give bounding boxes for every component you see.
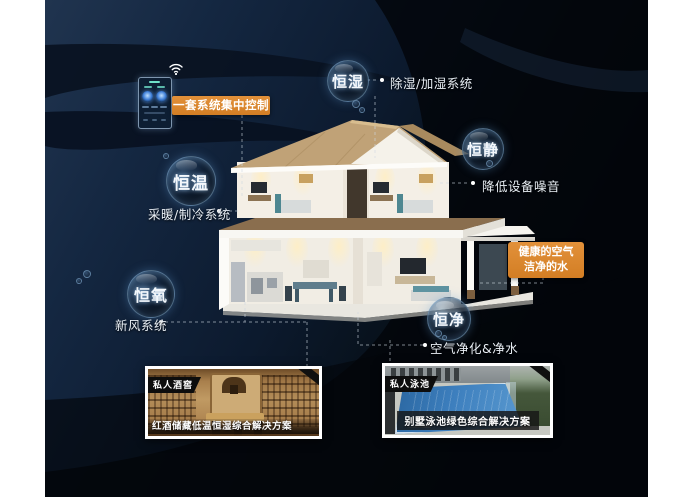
wifi-icon xyxy=(168,61,184,75)
control-panel-device xyxy=(138,77,172,129)
dark-canvas: 一套系统集中控制 恒湿 恒静 恒温 恒氧 恒净 除湿/加湿系统 降低设备噪音 采… xyxy=(45,0,648,497)
bubble-label: 恒静 xyxy=(467,139,499,160)
bubble-constant-temperature: 恒温 xyxy=(166,156,216,206)
note-constant-purity: 空气净化&净水 xyxy=(430,338,518,357)
bubble-constant-oxygen: 恒氧 xyxy=(127,270,175,318)
temperature-dial xyxy=(142,91,153,102)
mini-bubble xyxy=(486,160,493,167)
note-constant-temperature: 采暖/制冷系统 xyxy=(148,204,231,223)
note-constant-humidity: 除湿/加湿系统 xyxy=(390,73,473,92)
photo-tag-wine-cellar: 私人酒窖 xyxy=(148,377,201,393)
photo-wine-cellar: 私人酒窖 红酒储藏低温恒湿综合解决方案 xyxy=(145,366,322,439)
bubble-constant-humidity: 恒湿 xyxy=(327,60,369,102)
photo-caption-wine-cellar: 红酒储藏低温恒湿综合解决方案 xyxy=(148,419,319,434)
mini-bubble xyxy=(83,270,91,278)
panel-readout xyxy=(160,106,167,108)
panel-status-bar xyxy=(157,86,165,88)
pool-caption-text: 别墅泳池绿色综合解决方案 xyxy=(397,411,539,430)
cellar-vase xyxy=(230,385,238,394)
healthy-air-water-box: 健康的空气 洁净的水 xyxy=(508,242,584,278)
mini-bubble xyxy=(352,100,360,108)
panel-title-bar xyxy=(149,81,160,83)
bubble-label: 恒湿 xyxy=(332,71,364,92)
bubble-label: 恒氧 xyxy=(134,282,168,306)
bubble-label: 恒温 xyxy=(173,169,209,194)
bubble-constant-purity: 恒净 xyxy=(427,297,471,341)
note-constant-quiet: 降低设备噪音 xyxy=(482,176,560,195)
highlight-line2: 洁净的水 xyxy=(510,260,582,275)
humidity-dial xyxy=(156,91,167,102)
central-control-label: 一套系统集中控制 xyxy=(172,96,270,115)
bubble-label: 恒净 xyxy=(433,309,465,330)
panel-divider xyxy=(144,112,165,114)
bubble-constant-quiet: 恒静 xyxy=(462,128,504,170)
panel-readout xyxy=(151,106,158,108)
mini-bubble xyxy=(359,107,365,113)
photo-caption-swimming-pool: 别墅泳池绿色综合解决方案 xyxy=(385,411,550,430)
infographic-stage: 一套系统集中控制 恒湿 恒静 恒温 恒氧 恒净 除湿/加湿系统 降低设备噪音 采… xyxy=(0,0,700,497)
mini-bubble xyxy=(163,153,169,159)
mini-bubble xyxy=(435,330,442,337)
panel-menu-item xyxy=(143,119,148,121)
mini-bubble xyxy=(76,278,82,284)
panel-menu-item xyxy=(152,119,157,121)
note-constant-oxygen: 新风系统 xyxy=(115,315,167,334)
highlight-line1: 健康的空气 xyxy=(510,245,582,260)
panel-status-bar xyxy=(144,86,152,88)
photo-swimming-pool: 私人泳池 别墅泳池绿色综合解决方案 xyxy=(382,363,553,438)
panel-menu-item xyxy=(161,119,166,121)
panel-readout xyxy=(142,106,149,108)
photo-tag-swimming-pool: 私人泳池 xyxy=(385,376,438,392)
